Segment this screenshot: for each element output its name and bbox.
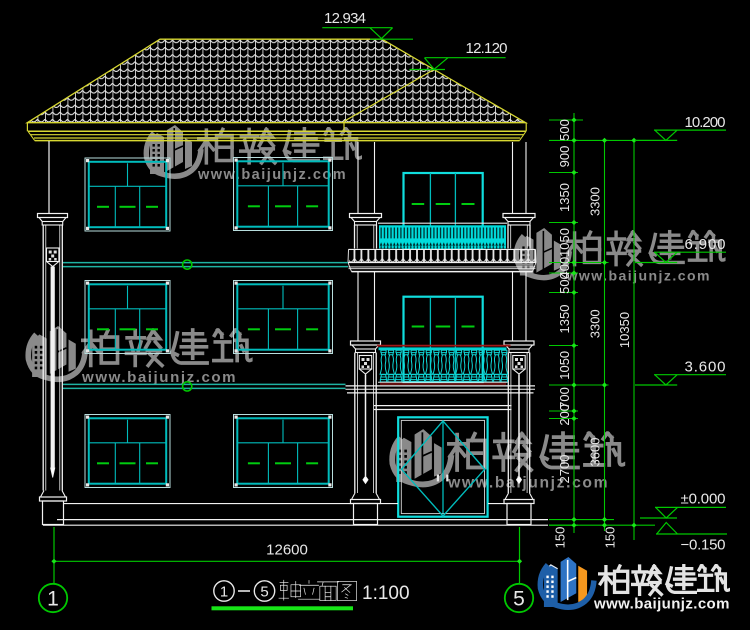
- svg-text:150: 150: [603, 527, 618, 549]
- svg-text:6.900: 6.900: [685, 236, 726, 253]
- svg-text:12600: 12600: [266, 542, 308, 559]
- svg-text:10.200: 10.200: [685, 114, 726, 131]
- svg-text:150: 150: [553, 527, 568, 549]
- svg-text:500: 500: [557, 119, 572, 141]
- svg-text:3.600: 3.600: [685, 359, 726, 376]
- svg-text:www.baijunjz.com: www.baijunjz.com: [593, 596, 730, 613]
- svg-text:3300: 3300: [588, 309, 603, 338]
- svg-text:1:100: 1:100: [362, 583, 410, 604]
- svg-text:5: 5: [513, 588, 525, 611]
- svg-text:1: 1: [47, 588, 59, 611]
- svg-text:±0.000: ±0.000: [681, 491, 726, 508]
- svg-text:12.934: 12.934: [324, 10, 366, 27]
- svg-text:1050: 1050: [557, 228, 572, 257]
- svg-text:2700: 2700: [557, 455, 572, 484]
- svg-text:5: 5: [260, 584, 268, 601]
- svg-text:1050: 1050: [557, 351, 572, 380]
- svg-text:1: 1: [220, 584, 228, 601]
- svg-text:1350: 1350: [557, 183, 572, 212]
- svg-text:900: 900: [557, 146, 572, 168]
- svg-text:3300: 3300: [588, 187, 603, 216]
- svg-text:500: 500: [557, 272, 572, 294]
- svg-text:10350: 10350: [617, 312, 632, 348]
- svg-text:−0.150: −0.150: [681, 537, 726, 554]
- svg-text:3600: 3600: [588, 438, 603, 467]
- svg-text:1350: 1350: [557, 305, 572, 334]
- svg-text:200: 200: [557, 404, 572, 426]
- svg-text:12.120: 12.120: [466, 40, 508, 57]
